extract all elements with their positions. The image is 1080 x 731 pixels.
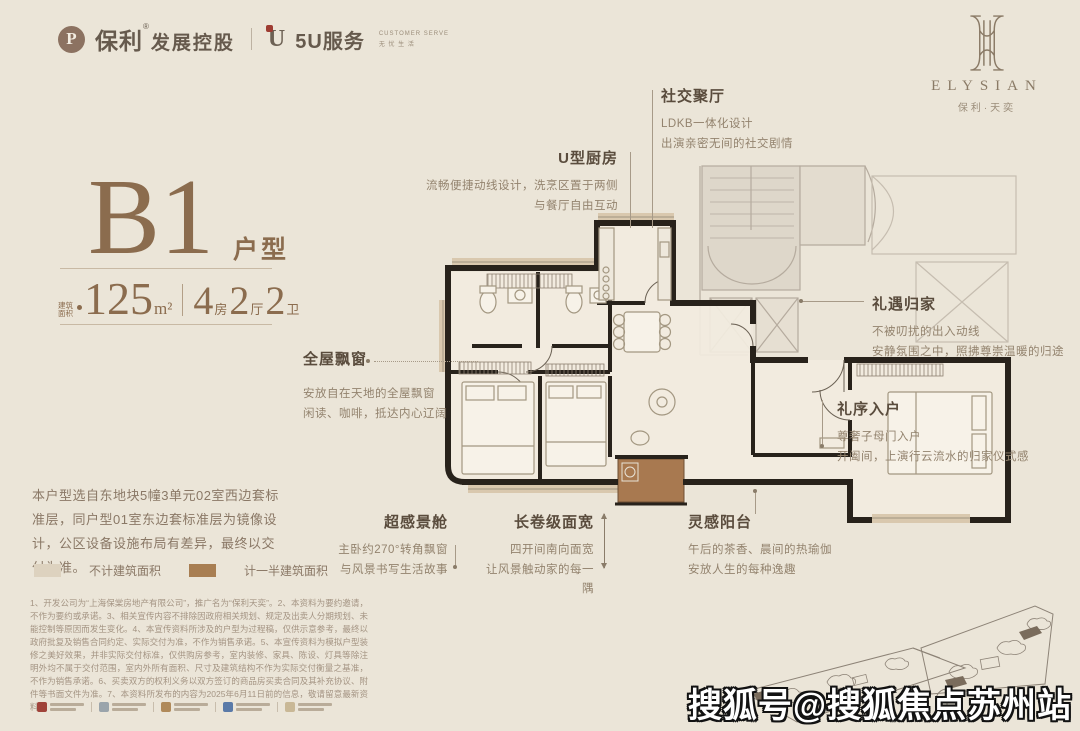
annotation-title: 长卷级面宽	[478, 511, 594, 532]
balcony	[615, 459, 687, 504]
poly-logo-text: 保利®发展控股	[95, 22, 235, 56]
annotation-title: 灵感阳台	[688, 511, 832, 532]
legend-label-half: 计一半建筑面积	[244, 562, 328, 579]
leader-entry-dot	[820, 444, 824, 448]
annotation-title: 超感景舱	[298, 511, 448, 532]
annotation-title: 社交聚厅	[661, 85, 793, 106]
header-brand-group: P 保利®发展控股 U 5U服务 CUSTOMER SERVE 无 忧 生 活	[58, 22, 449, 56]
leader-balcony-dot	[753, 489, 757, 493]
partner-logos-row	[30, 702, 339, 712]
annotation-bay: 全屋飘窗 安放自在天地的全屋飘窗 闲读、咖啡，抵达内心辽阔	[303, 348, 447, 424]
project-subtitle: 保利·天奕	[922, 99, 1052, 114]
leader-kitchen	[630, 152, 631, 228]
title-rule-bottom	[60, 324, 272, 325]
legend-label-excluded: 不计建筑面积	[89, 562, 161, 579]
leader-entry	[822, 400, 823, 444]
leader-homecoming-dot	[799, 299, 803, 303]
legend-swatch-half	[189, 564, 216, 577]
leader-span-arrow	[604, 514, 605, 568]
title-rule-top	[60, 268, 272, 269]
annotation-title: 全屋飘窗	[303, 348, 447, 369]
spec-baths-num: 2	[265, 281, 285, 321]
5u-service-tagline: CUSTOMER SERVE 无 忧 生 活	[379, 31, 449, 48]
5u-service-label: 5U服务	[295, 25, 365, 54]
spec-rooms-num: 4	[193, 281, 213, 321]
leader-viewcabin-dot	[453, 565, 457, 569]
header-divider	[251, 28, 252, 50]
plan-code-suffix: 户型	[233, 230, 289, 266]
partner-logo-text	[112, 703, 146, 711]
plan-code: B1	[88, 170, 214, 266]
legal-disclaimer: 1、开发公司为“上海保棠房地产有限公司”，推广名为“保利天奕”。2、本资料为要约…	[30, 597, 368, 714]
annotation-balcony: 灵感阳台 午后的茶香、晨间的热瑜伽 安放人生的每种逸趣	[688, 511, 832, 580]
poly-logo-icon: P	[58, 26, 85, 53]
poster: P 保利®发展控股 U 5U服务 CUSTOMER SERVE 无 忧 生 活 …	[0, 0, 1080, 731]
partner-logo-chip	[216, 702, 278, 712]
leader-viewcabin	[455, 545, 456, 567]
annotation-entry: 礼序入户 尊奢子母门入户 开阖间，上演行云流水的归家仪式感	[837, 398, 1029, 467]
partner-logo-chip	[154, 702, 216, 712]
leader-bay-dot	[366, 359, 370, 363]
elysian-emblem-icon	[965, 14, 1009, 72]
annotation-kitchen: U型厨房 流畅便捷动线设计，洗烹区置于两侧 与餐厅自由互动	[420, 147, 618, 216]
project-name: ELYSIAN	[922, 78, 1052, 95]
area-label: 建筑 面积	[58, 302, 73, 318]
5u-logo-icon: U	[268, 27, 285, 51]
leader-bay	[374, 361, 478, 362]
annotation-span: 长卷级面宽 四开间南向面宽 让风景触动家的每一隅	[478, 511, 594, 600]
spec-divider	[182, 284, 183, 316]
partner-logo-text	[174, 703, 208, 711]
partner-logo-icon	[99, 702, 109, 712]
legend-swatch-excluded	[34, 564, 61, 577]
watermark: 搜狐号@搜狐焦点苏州站	[688, 678, 1072, 727]
partner-logo-chip	[278, 702, 339, 712]
project-logo: ELYSIAN 保利·天奕	[922, 14, 1052, 114]
partner-logo-icon	[223, 702, 233, 712]
partner-logo-chip	[30, 702, 92, 712]
partner-logo-text	[298, 703, 332, 711]
partner-logo-chip	[92, 702, 154, 712]
annotation-title: U型厨房	[420, 147, 618, 168]
leader-social	[652, 90, 653, 228]
annotation-social: 社交聚厅 LDKB一体化设计 出演亲密无间的社交剧情	[661, 85, 793, 154]
spec-baths-unit: 卫	[286, 299, 299, 318]
partner-logo-icon	[37, 702, 47, 712]
leader-homecoming	[802, 301, 864, 302]
area-unit: m²	[154, 299, 172, 319]
partner-logo-text	[50, 703, 84, 711]
area-value: 125	[84, 276, 153, 322]
spec-rooms-unit: 房	[214, 299, 227, 318]
spec-halls-num: 2	[229, 281, 249, 321]
partner-logo-text	[236, 703, 270, 711]
area-legend: 不计建筑面积 计一半建筑面积	[34, 562, 342, 579]
area-approx-dot	[77, 305, 82, 310]
annotation-title: 礼遇归家	[872, 293, 1064, 314]
partner-logo-icon	[161, 702, 171, 712]
plan-spec-row: 建筑 面积 125 m² 4 房 2 厅 2 卫	[58, 276, 301, 324]
spec-halls-unit: 厅	[250, 299, 263, 318]
leader-balcony	[755, 492, 756, 514]
partner-logo-icon	[285, 702, 295, 712]
annotation-title: 礼序入户	[837, 398, 1029, 419]
annotation-homecoming: 礼遇归家 不被叨扰的出入动线 安静氛围之中，照拂尊崇温暖的归途	[872, 293, 1064, 362]
